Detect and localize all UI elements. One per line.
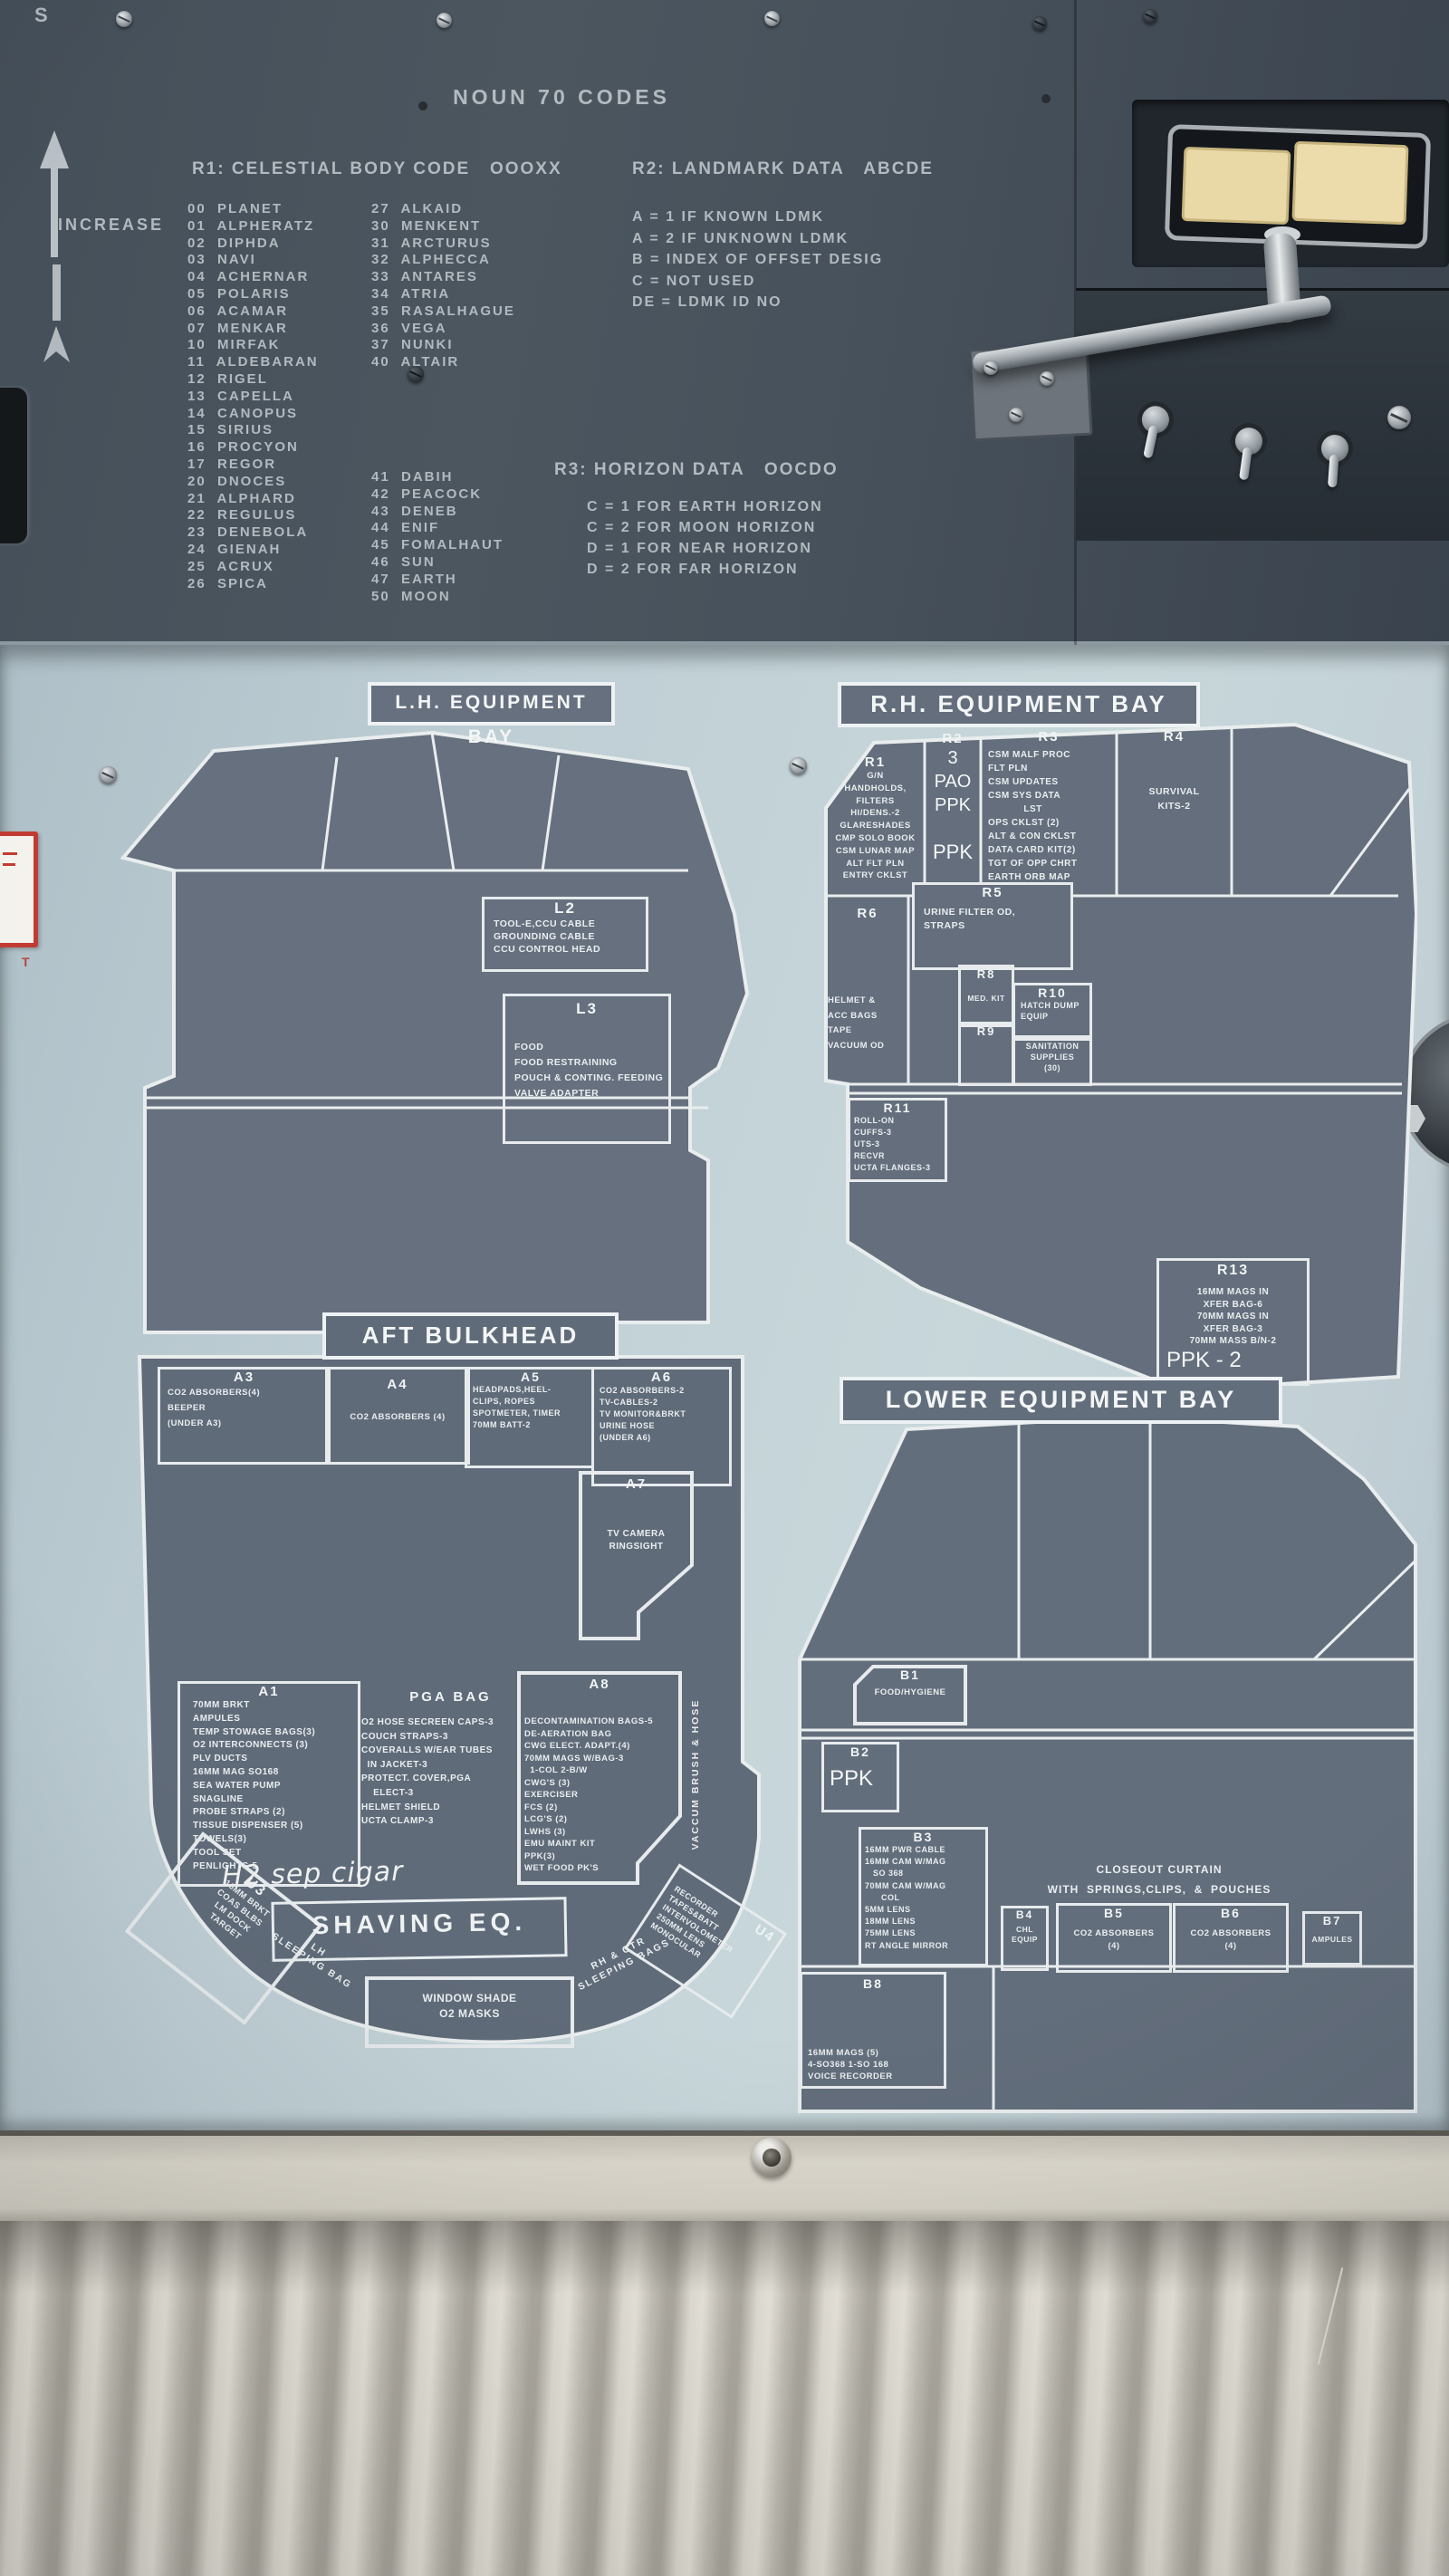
curtain-pleats bbox=[0, 2221, 1449, 2576]
code-line: 26 SPICA bbox=[187, 576, 319, 593]
red-mark: T bbox=[22, 955, 30, 969]
code-line: 11 ALDEBARAN bbox=[187, 354, 319, 371]
box-b6: B6 CO2 ABSORBERS(4) bbox=[1173, 1903, 1289, 1973]
red-warning-tag-fragment bbox=[0, 831, 38, 947]
code-line: 00 PLANET bbox=[187, 201, 319, 218]
item-line: CMP SOLO BOOK bbox=[826, 832, 925, 845]
legend-line: DE = LDMK ID NO bbox=[632, 292, 883, 313]
item-line: ELECT-3 bbox=[361, 1786, 543, 1801]
code-line: 10 MIRFAK bbox=[187, 337, 319, 354]
item-line: AMPULES bbox=[193, 1713, 358, 1726]
code-line: 20 DNOCES bbox=[187, 474, 319, 491]
pga-bag-lines: O2 HOSE SECREEN CAPS-3COUCH STRAPS-3COVE… bbox=[358, 1716, 543, 1829]
item-line: ACC BAGS bbox=[828, 1009, 907, 1024]
box-b8: B8 16MM MAGS (5)4-SO368 1-SO 168VOICE RE… bbox=[800, 1972, 946, 2089]
box-r9-title: R9 bbox=[961, 1024, 1012, 1038]
item-line: SEA WATER PUMP bbox=[193, 1780, 358, 1793]
aft-bulkhead-title: AFT BULKHEAD bbox=[322, 1312, 619, 1360]
code-line: 21 ALPHARD bbox=[187, 491, 319, 508]
item-line: (30) bbox=[1015, 1062, 1089, 1073]
item-line: RECVR bbox=[854, 1150, 945, 1162]
code-line: 44 ENIF bbox=[371, 520, 504, 537]
item-line: CO2 ABSORBERS-2 bbox=[600, 1385, 729, 1397]
box-r11-title: R11 bbox=[850, 1101, 945, 1115]
box-a7-lines: TV CAMERARINGSIGHT bbox=[579, 1528, 694, 1553]
landmark-data-lines: A = 1 IF KNOWN LDMKA = 2 IF UNKNOWN LDMK… bbox=[632, 207, 883, 313]
item-line: DE-AERATION BAG bbox=[524, 1728, 682, 1741]
code-line: 17 REGOR bbox=[187, 457, 319, 474]
item-line: VACUUM OD bbox=[828, 1039, 907, 1054]
toggle-lever bbox=[1143, 425, 1158, 458]
item-line: COL bbox=[865, 1892, 985, 1904]
item-line: DATA CARD KIT(2) bbox=[988, 843, 1117, 857]
code-line: 23 DENEBOLA bbox=[187, 524, 319, 542]
cell-r6-title: R6 bbox=[828, 906, 907, 921]
legend-line: D = 2 FOR FAR HORIZON bbox=[587, 559, 823, 580]
box-r10-title: R10 bbox=[1015, 985, 1089, 1000]
cell-r6: R6 HELMET &ACC BAGSTAPEVACUUM OD bbox=[828, 906, 907, 1053]
code-line: 04 ACHERNAR bbox=[187, 269, 319, 286]
box-a4-lines: CO2 ABSORBERS (4) bbox=[328, 1412, 467, 1422]
legend-line: A = 2 IF UNKNOWN LDMK bbox=[632, 228, 883, 250]
item-line: ROLL-ON bbox=[854, 1115, 945, 1127]
box-r8: R8 MED. KIT bbox=[958, 965, 1014, 1027]
item-line: O2 HOSE SECREEN CAPS-3 bbox=[361, 1716, 543, 1730]
code-line: 07 MENKAR bbox=[187, 321, 319, 338]
item-line: SUPPLIES bbox=[1015, 1052, 1089, 1062]
cell-r3: R3 CSM MALF PROCFLT PLNCSM UPDATESCSM SY… bbox=[981, 729, 1117, 884]
lh-bay-title: L.H. EQUIPMENT BAY bbox=[368, 682, 615, 726]
item-line: 75MM LENS bbox=[865, 1927, 985, 1939]
box-r8-title: R8 bbox=[961, 967, 1012, 981]
item-line: PROBE STRAPS (2) bbox=[193, 1806, 358, 1820]
code-line: 14 CANOPUS bbox=[187, 406, 319, 423]
item-line: TV-CABLES-2 bbox=[600, 1397, 729, 1408]
item-line: SNAGLINE bbox=[193, 1793, 358, 1807]
code-line: 01 ALPHERATZ bbox=[187, 218, 319, 235]
legend-line: C = NOT USED bbox=[632, 271, 883, 293]
code-line: 24 GIENAH bbox=[187, 542, 319, 559]
horizon-data-lines: C = 1 FOR EARTH HORIZONC = 2 FOR MOON HO… bbox=[587, 496, 823, 580]
code-line: 13 CAPELLA bbox=[187, 389, 319, 406]
pga-bag-block: PGA BAG O2 HOSE SECREEN CAPS-3COUCH STRA… bbox=[358, 1689, 543, 1829]
item-line: TEMP STOWAGE BAGS(3) bbox=[193, 1726, 358, 1740]
item-line: TV CAMERA bbox=[579, 1528, 694, 1541]
item-line: CO2 ABSORBERS (4) bbox=[328, 1412, 467, 1422]
code-line: 45 FOMALHAUT bbox=[371, 537, 504, 554]
window-shade-box: WINDOW SHADEO2 MASKS bbox=[365, 1976, 574, 2048]
cell-r3-lines: CSM MALF PROCFLT PLNCSM UPDATESCSM SYS D… bbox=[981, 748, 1117, 884]
item-line: TAPE bbox=[828, 1024, 907, 1039]
curtain-top-band bbox=[0, 2130, 1449, 2226]
screw-icon bbox=[1009, 408, 1023, 422]
box-b5-lines: CO2 ABSORBERS(4) bbox=[1059, 1927, 1169, 1953]
item-line: HELMET SHIELD bbox=[361, 1801, 543, 1815]
box-b8-title: B8 bbox=[802, 1975, 944, 1991]
code-line: 47 EARTH bbox=[371, 572, 504, 589]
item-line: HEADPADS,HEEL- bbox=[473, 1384, 594, 1396]
code-line: 41 DABIH bbox=[371, 469, 504, 486]
box-b4: B4 CHLEQUIP bbox=[1001, 1906, 1049, 1971]
item-line: HANDHOLDS, bbox=[826, 783, 925, 795]
code-line: 03 NAVI bbox=[187, 252, 319, 269]
box-a8-lines: DECONTAMINATION BAGS-5DE-AERATION BAGCWG… bbox=[517, 1716, 682, 1875]
cell-r4-title: R4 bbox=[1117, 729, 1232, 745]
item-line: URINE HOSE bbox=[600, 1420, 729, 1432]
item-line: UCTA CLAMP-3 bbox=[361, 1814, 543, 1829]
item-line: PROTECT. COVER,PGA bbox=[361, 1772, 543, 1786]
item-line: CO2 ABSORBERS bbox=[1059, 1927, 1169, 1940]
item-line: HELMET & bbox=[828, 994, 907, 1009]
increase-label: INCREASE bbox=[58, 216, 164, 235]
box-a7-title: A7 bbox=[579, 1476, 694, 1492]
apollo-panel-photo: S INCREASE NOUN 70 CODES R1: CELESTIAL B… bbox=[0, 0, 1449, 2576]
item-line: BEEPER bbox=[168, 1400, 328, 1416]
item-line: PLV DUCTS bbox=[193, 1753, 358, 1766]
box-r13-ppk-mark: PPK - 2 bbox=[1159, 1348, 1307, 1373]
box-r5-lines: URINE FILTER OD,STRAPS bbox=[915, 906, 1070, 933]
legend-line: C = 2 FOR MOON HORIZON bbox=[587, 517, 823, 538]
legend-line: C = 1 FOR EARTH HORIZON bbox=[587, 496, 823, 517]
item-line: POUCH & CONTING. FEEDING bbox=[514, 1071, 668, 1086]
code-line: 22 REGULUS bbox=[187, 507, 319, 524]
screw-icon bbox=[984, 360, 998, 375]
code-line: 05 POLARIS bbox=[187, 286, 319, 303]
snap-center bbox=[763, 2148, 781, 2167]
item-line: SPOTMETER, TIMER bbox=[473, 1408, 594, 1419]
box-b1-title: B1 bbox=[853, 1668, 967, 1682]
grease-pencil-mark: PAO bbox=[925, 770, 981, 793]
item-line: 70MM MASS B/N-2 bbox=[1159, 1335, 1307, 1348]
screw-icon bbox=[408, 366, 424, 382]
label-line: WINDOW SHADE bbox=[369, 1991, 571, 2006]
item-line: CCU CONTROL HEAD bbox=[494, 943, 646, 956]
code-line: 25 ACRUX bbox=[187, 559, 319, 576]
cell-r2-title: R2 bbox=[925, 731, 981, 746]
screw-icon bbox=[1143, 9, 1157, 24]
cell-r4: R4 SURVIVALKITS-2 bbox=[1117, 729, 1232, 813]
item-line: FOOD bbox=[514, 1040, 668, 1055]
box-a5-title: A5 bbox=[467, 1370, 594, 1384]
item-line: FLT PLN bbox=[988, 762, 1117, 775]
item-line: ALT FLT PLN bbox=[826, 858, 925, 870]
code-line: 12 RIGEL bbox=[187, 371, 319, 389]
item-line: EMU MAINT KIT bbox=[524, 1838, 682, 1850]
box-a3-title: A3 bbox=[160, 1370, 328, 1385]
box-b3-lines: 16MM PWR CABLE16MM CAM W/MAG SO 36870MM … bbox=[861, 1844, 985, 1952]
box-a7: A7 TV CAMERARINGSIGHT bbox=[579, 1476, 694, 1553]
screw-icon bbox=[116, 11, 132, 27]
cell-r2-mark2: PPK bbox=[925, 841, 981, 864]
item-line: (4) bbox=[1059, 1940, 1169, 1953]
code-line: 43 DENEB bbox=[371, 504, 504, 521]
item-line: SO 368 bbox=[865, 1868, 985, 1879]
code-line: 36 VEGA bbox=[371, 321, 515, 338]
item-line: FOOD/HYGIENE bbox=[853, 1687, 967, 1697]
screw-icon bbox=[1032, 16, 1047, 31]
item-line: IN JACKET-3 bbox=[361, 1758, 543, 1773]
box-r13-title: R13 bbox=[1159, 1261, 1307, 1279]
code-line: 31 ARCTURUS bbox=[371, 235, 515, 253]
cell-r4-lines: SURVIVALKITS-2 bbox=[1117, 784, 1232, 813]
r1-header: R1: CELESTIAL BODY CODE OOOXX bbox=[192, 159, 562, 179]
box-b3: B3 16MM PWR CABLE16MM CAM W/MAG SO 36870… bbox=[859, 1827, 988, 1966]
item-line: UCTA FLANGES-3 bbox=[854, 1162, 945, 1174]
lamp-lens-right bbox=[1292, 141, 1409, 225]
box-a3-lines: CO2 ABSORBERS(4)BEEPER(UNDER A3) bbox=[160, 1385, 328, 1431]
aft-bulkhead-placard: AFT BULKHEAD A3 CO2 ABSORBERS(4)BEEPER(U… bbox=[136, 1309, 761, 2056]
box-r11-lines: ROLL-ONCUFFS-3UTS-3RECVRUCTA FLANGES-3 bbox=[850, 1115, 945, 1174]
code-line: 06 ACAMAR bbox=[187, 303, 319, 321]
box-l2-lines: TOOL-E,CCU CABLEGROUNDING CABLECCU CONTR… bbox=[485, 918, 646, 956]
box-a5-lines: HEADPADS,HEEL-CLIPS, ROPESSPOTMETER, TIM… bbox=[467, 1384, 594, 1431]
legend-line: A = 1 IF KNOWN LDMK bbox=[632, 207, 883, 228]
lamp-lens-left bbox=[1182, 147, 1291, 225]
item-line: 16MM CAM W/MAG bbox=[865, 1856, 985, 1868]
r3-header: R3: HORIZON DATA OOCDO bbox=[554, 460, 839, 480]
vacuum-brush-label: VACCUM BRUSH & HOSE bbox=[690, 1688, 701, 1860]
item-line: UTS-3 bbox=[854, 1139, 945, 1150]
item-line: KITS-2 bbox=[1117, 799, 1232, 813]
box-a5: A5 HEADPADS,HEEL-CLIPS, ROPESSPOTMETER, … bbox=[465, 1367, 597, 1468]
item-line: TGT OF OPP CHRT bbox=[988, 857, 1117, 870]
item-line: EXERCISER bbox=[524, 1789, 682, 1802]
box-a1-title: A1 bbox=[180, 1684, 358, 1699]
box-a8-title: A8 bbox=[517, 1677, 682, 1692]
celestial-codes-column-1: 00 PLANET01 ALPHERATZ02 DIPHDA03 NAVI04 … bbox=[187, 201, 319, 592]
screw-icon bbox=[100, 766, 117, 783]
item-line: TV MONITOR&BRKT bbox=[600, 1408, 729, 1420]
item-line: 70MM BRKT bbox=[193, 1699, 358, 1713]
code-line: 27 ALKAID bbox=[371, 201, 515, 218]
box-a6-title: A6 bbox=[594, 1370, 729, 1385]
stowage-diagram-panel: T L.H. EQUIPMENT BAY L2 TOOL-E,CCU CABLE… bbox=[0, 645, 1449, 2130]
item-line: 70MM BATT-2 bbox=[473, 1419, 594, 1431]
item-line: CSM MALF PROC bbox=[988, 748, 1117, 762]
snap-fastener bbox=[752, 2138, 792, 2177]
item-line: TOOL-E,CCU CABLE bbox=[494, 918, 646, 930]
rh-equipment-bay-placard: R.H. EQUIPMENT BAY R1 G/NHANDHOLDS,FILTE… bbox=[815, 675, 1417, 1399]
legend-line: D = 1 FOR NEAR HORIZON bbox=[587, 538, 823, 559]
screw-icon bbox=[1040, 371, 1054, 386]
box-r11: R11 ROLL-ONCUFFS-3UTS-3RECVRUCTA FLANGES… bbox=[848, 1098, 947, 1182]
item-line: VALVE ADAPTER bbox=[514, 1086, 668, 1101]
item-line: MED. KIT bbox=[961, 994, 1012, 1003]
cell-r6-lines: HELMET &ACC BAGSTAPEVACUUM OD bbox=[828, 994, 907, 1053]
code-line: 33 ANTARES bbox=[371, 269, 515, 286]
code-line: 37 NUNKI bbox=[371, 337, 515, 354]
label-line: WITH SPRINGS,CLIPS, & POUCHES bbox=[1010, 1879, 1309, 1899]
box-b6-title: B6 bbox=[1176, 1906, 1286, 1920]
box-b7: B7 AMPULES bbox=[1302, 1911, 1362, 1966]
box-r13: R13 16MM MAGS INXFER BAG-670MM MAGS INXF… bbox=[1156, 1258, 1310, 1386]
box-b7-lines: AMPULES bbox=[1305, 1935, 1359, 1944]
item-line: EQUIP bbox=[1021, 1011, 1089, 1022]
box-b1-lines: FOOD/HYGIENE bbox=[853, 1687, 967, 1697]
legend-line: B = INDEX OF OFFSET DESIG bbox=[632, 249, 883, 271]
item-line: O2 INTERCONNECTS (3) bbox=[193, 1739, 358, 1753]
grease-pencil-mark: PPK bbox=[925, 793, 981, 817]
celestial-codes-column-2b: 41 DABIH42 PEACOCK43 DENEB44 ENIF45 FOMA… bbox=[371, 469, 504, 605]
box-b3-title: B3 bbox=[861, 1830, 985, 1844]
code-line: 50 MOON bbox=[371, 589, 504, 606]
closeout-curtain-label: CLOSEOUT CURTAINWITH SPRINGS,CLIPS, & PO… bbox=[1010, 1860, 1309, 1899]
item-line: CLIPS, ROPES bbox=[473, 1396, 594, 1408]
box-a6-lines: CO2 ABSORBERS-2TV-CABLES-2TV MONITOR&BRK… bbox=[594, 1385, 729, 1444]
item-line: XFER BAG-6 bbox=[1159, 1299, 1307, 1312]
lh-equipment-bay-placard: L.H. EQUIPMENT BAY L2 TOOL-E,CCU CABLEGR… bbox=[118, 675, 761, 1341]
lower-bay-title: LOWER EQUIPMENT BAY bbox=[840, 1377, 1282, 1424]
r2-header: R2: LANDMARK DATA ABCDE bbox=[632, 159, 934, 179]
knob bbox=[1387, 406, 1411, 429]
screw-icon bbox=[764, 11, 780, 26]
box-a3: A3 CO2 ABSORBERS(4)BEEPER(UNDER A3) bbox=[158, 1367, 331, 1465]
item-line: 70MM CAM W/MAG bbox=[865, 1880, 985, 1892]
item-line: FILTERS bbox=[826, 795, 925, 808]
box-r10: R10 HATCH DUMPEQUIP bbox=[1012, 983, 1092, 1041]
item-line: 70MM MAGS IN bbox=[1159, 1311, 1307, 1323]
box-l3-lines: FOODFOOD RESTRAININGPOUCH & CONTING. FEE… bbox=[505, 1040, 668, 1101]
item-line: ENTRY CKLST bbox=[826, 870, 925, 882]
label-line: O2 MASKS bbox=[369, 2006, 571, 2022]
item-line: TISSUE DISPENSER (5) bbox=[193, 1820, 358, 1833]
red-tag-text-line bbox=[3, 852, 17, 855]
item-line: HATCH DUMP bbox=[1021, 1000, 1089, 1011]
grease-pencil-mark: 3 bbox=[925, 746, 981, 770]
fabric-curtain bbox=[0, 2130, 1449, 2576]
box-b1: B1 FOOD/HYGIENE bbox=[853, 1668, 967, 1697]
code-line: 46 SUN bbox=[371, 554, 504, 572]
item-line: CSM SYS DATA bbox=[988, 789, 1117, 803]
item-line: (UNDER A6) bbox=[600, 1432, 729, 1444]
item-line: CO2 ABSORBERS(4) bbox=[168, 1385, 328, 1400]
box-r5: R5 URINE FILTER OD,STRAPS bbox=[912, 882, 1073, 970]
increase-arrow-icon bbox=[34, 129, 76, 371]
code-line: 40 ALTAIR bbox=[371, 354, 515, 371]
noun-codes-panel: S INCREASE NOUN 70 CODES R1: CELESTIAL B… bbox=[0, 0, 1449, 650]
cell-r2-marks: 3PAOPPK bbox=[925, 746, 981, 817]
box-r10-lines: HATCH DUMPEQUIP bbox=[1015, 1000, 1089, 1022]
code-line: 30 MENKENT bbox=[371, 218, 515, 235]
item-line: SANITATION bbox=[1015, 1041, 1089, 1052]
box-l3: L3 FOODFOOD RESTRAININGPOUCH & CONTING. … bbox=[503, 994, 671, 1144]
rivet-dot-icon bbox=[1041, 94, 1051, 103]
box-b2: B2 PPK bbox=[821, 1742, 899, 1812]
item-line: CHL bbox=[1003, 1925, 1046, 1935]
box-l2: L2 TOOL-E,CCU CABLEGROUNDING CABLECCU CO… bbox=[482, 897, 648, 972]
strap-end-object bbox=[0, 388, 27, 543]
noun-codes-title: NOUN 70 CODES bbox=[453, 85, 670, 110]
red-tag-text-line bbox=[3, 863, 15, 866]
item-line: 16MM PWR CABLE bbox=[865, 1844, 985, 1856]
item-line: VOICE RECORDER bbox=[808, 2071, 893, 2082]
code-line: 16 PROCYON bbox=[187, 439, 319, 457]
box-a4-title: A4 bbox=[328, 1377, 467, 1392]
item-line: SURVIVAL bbox=[1117, 784, 1232, 799]
rh-bay-title: R.H. EQUIPMENT BAY bbox=[838, 682, 1200, 727]
item-line: DECONTAMINATION BAGS-5 bbox=[524, 1716, 682, 1728]
item-line: 70MM MAGS W/BAG-3 bbox=[524, 1753, 682, 1765]
item-line: 18MM LENS bbox=[865, 1916, 985, 1927]
celestial-codes-column-2a: 27 ALKAID30 MENKENT31 ARCTURUS32 ALPHECC… bbox=[371, 201, 515, 371]
item-line: FCS (2) bbox=[524, 1802, 682, 1814]
item-line: FOOD RESTRAINING bbox=[514, 1055, 668, 1071]
item-line: RT ANGLE MIRROR bbox=[865, 1940, 985, 1952]
pga-bag-title: PGA BAG bbox=[358, 1689, 543, 1705]
item-line: 16MM MAG SO168 bbox=[193, 1766, 358, 1780]
item-line: RINGSIGHT bbox=[579, 1541, 694, 1553]
item-line: STRAPS bbox=[924, 919, 1070, 933]
box-b4-lines: CHLEQUIP bbox=[1003, 1925, 1046, 1945]
code-line: 32 ALPHECCA bbox=[371, 252, 515, 269]
item-line: CSM UPDATES bbox=[988, 775, 1117, 789]
item-line: (4) bbox=[1176, 1940, 1286, 1953]
box-b8-lines: 16MM MAGS (5)4-SO368 1-SO 168VOICE RECOR… bbox=[808, 2047, 893, 2082]
window-shade-lines: WINDOW SHADEO2 MASKS bbox=[369, 1991, 571, 2022]
toggle-switch bbox=[1319, 434, 1349, 488]
item-line: ALT & CON CKLST bbox=[988, 830, 1117, 843]
code-line: 35 RASALHAGUE bbox=[371, 303, 515, 321]
box-b4-title: B4 bbox=[1003, 1908, 1046, 1921]
item-line: EQUIP bbox=[1003, 1935, 1046, 1945]
box-r13-lines: 16MM MAGS INXFER BAG-670MM MAGS INXFER B… bbox=[1159, 1286, 1307, 1348]
box-b2-title: B2 bbox=[824, 1745, 897, 1759]
item-line: CO2 ABSORBERS bbox=[1176, 1927, 1286, 1940]
item-line: HI/DENS.-2 bbox=[826, 807, 925, 820]
item-line: AMPULES bbox=[1305, 1935, 1359, 1944]
cell-r1: R1 G/NHANDHOLDS,FILTERSHI/DENS.-2GLARESH… bbox=[826, 755, 925, 882]
cell-r3-title: R3 bbox=[981, 729, 1117, 745]
cell-r1-lines: G/NHANDHOLDS,FILTERSHI/DENS.-2GLARESHADE… bbox=[826, 770, 925, 882]
item-line: LST bbox=[988, 803, 1117, 816]
rivet-dot-icon bbox=[418, 101, 427, 111]
cell-r2: R2 3PAOPPK PPK bbox=[925, 731, 981, 864]
item-line: (UNDER A3) bbox=[168, 1416, 328, 1431]
item-line: G/N bbox=[826, 770, 925, 783]
item-line: CWG'S (3) bbox=[524, 1777, 682, 1790]
box-b5-title: B5 bbox=[1059, 1906, 1169, 1920]
box-l2-title: L2 bbox=[485, 899, 646, 918]
item-line: COVERALLS W/EAR TUBES bbox=[361, 1744, 543, 1758]
item-line: 16MM MAGS (5) bbox=[808, 2047, 893, 2059]
item-line: OPS CKLST (2) bbox=[988, 816, 1117, 830]
item-line: XFER BAG-3 bbox=[1159, 1323, 1307, 1336]
item-line: LWHS (3) bbox=[524, 1826, 682, 1839]
item-line: CWG ELECT. ADAPT.(4) bbox=[524, 1740, 682, 1753]
box-l3-title: L3 bbox=[505, 996, 668, 1018]
item-line: LCG'S (2) bbox=[524, 1813, 682, 1826]
item-line: 5MM LENS bbox=[865, 1904, 985, 1916]
code-line: 34 ATRIA bbox=[371, 286, 515, 303]
item-line: GLARESHADES bbox=[826, 820, 925, 832]
box-r9: R9 bbox=[958, 1022, 1014, 1086]
code-line: 15 SIRIUS bbox=[187, 422, 319, 439]
cell-r1-title: R1 bbox=[826, 755, 925, 770]
box-r8-lines: MED. KIT bbox=[961, 994, 1012, 1003]
box-sanitation: SANITATIONSUPPLIES(30) bbox=[1012, 1035, 1092, 1086]
lower-equipment-bay-placard: LOWER EQUIPMENT BAY B1 FOOD/HYGIENE B2 P… bbox=[792, 1372, 1417, 2124]
box-a8: A8 DECONTAMINATION BAGS-5DE-AERATION BAG… bbox=[517, 1677, 682, 1875]
screw-icon bbox=[437, 13, 452, 28]
box-a6: A6 CO2 ABSORBERS-2TV-CABLES-2TV MONITOR&… bbox=[591, 1367, 732, 1486]
item-line: COUCH STRAPS-3 bbox=[361, 1730, 543, 1745]
item-line: URINE FILTER OD, bbox=[924, 906, 1070, 919]
item-line: GROUNDING CABLE bbox=[494, 930, 646, 943]
box-a4: A4 CO2 ABSORBERS (4) bbox=[325, 1367, 470, 1465]
item-line: CUFFS-3 bbox=[854, 1127, 945, 1139]
box-b2-ppk-mark: PPK bbox=[824, 1766, 897, 1792]
toggle-lever bbox=[1328, 455, 1339, 488]
